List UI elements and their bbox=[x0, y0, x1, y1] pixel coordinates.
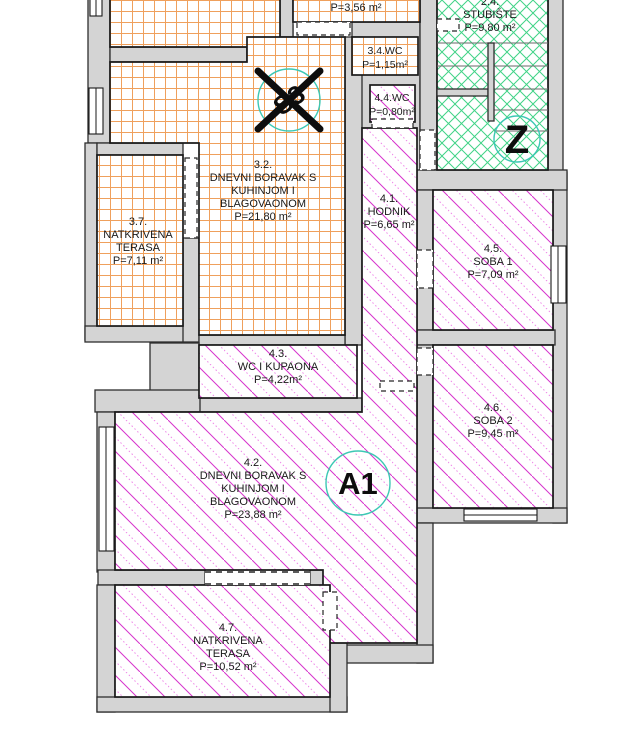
door-terrace-3-7 bbox=[185, 158, 197, 238]
room-3-7-area-label: P=7,11 m² bbox=[113, 255, 164, 267]
room-3-4-wc-name: 3.4.WC bbox=[367, 45, 402, 57]
room-4-6-area-label: P=9,45 m² bbox=[467, 428, 518, 440]
door-stubiste-top bbox=[437, 19, 459, 31]
window-bottom-soba2 bbox=[464, 509, 537, 521]
room-4-1-number: 4.1. bbox=[380, 193, 398, 205]
window-top-left bbox=[90, 0, 102, 16]
opening-terrace-4-7 bbox=[205, 571, 310, 585]
room-4-1-area-label: P=6,65 m² bbox=[363, 219, 414, 231]
door-4-4-wc bbox=[372, 119, 413, 128]
room-3-7-number: 3.7. bbox=[129, 216, 147, 228]
room-3-2-name-1: DNEVNI BORAVAK S bbox=[210, 172, 317, 184]
door-top-room bbox=[297, 22, 350, 35]
room-3-2-area-label: P=21,80 m² bbox=[234, 211, 292, 223]
room-4-4-wc-area-label: P=0,80m² bbox=[369, 106, 415, 118]
room-stubiste-number: 2.4. bbox=[481, 0, 499, 8]
window-right-soba1 bbox=[551, 246, 566, 303]
room-4-5-number: 4.5. bbox=[484, 243, 502, 255]
window-left-living bbox=[99, 427, 114, 551]
room-4-2-name-3: BLAGOVAONOM bbox=[210, 496, 296, 508]
room-3-7-name-2: TERASA bbox=[116, 242, 161, 254]
room-4-2-name-2: KUHINJOM I bbox=[221, 483, 285, 495]
room-4-5-name: SOBA 1 bbox=[473, 256, 512, 268]
staircase-marker-label: Z bbox=[505, 118, 529, 162]
room-4-3-number: 4.3. bbox=[269, 348, 287, 360]
room-stubiste-name: STUBIŠTE bbox=[463, 8, 517, 21]
door-soba2 bbox=[417, 348, 433, 375]
room-3-4-wc-area-label: P=1,15m² bbox=[362, 59, 408, 71]
room-stubiste-area-label: P=9,80 m² bbox=[464, 22, 515, 34]
room-4-7-number: 4.7. bbox=[219, 622, 237, 634]
room-4-2-number: 4.2. bbox=[244, 457, 262, 469]
room-4-1-name: HODNIK bbox=[368, 206, 411, 218]
room-4-6-number: 4.6. bbox=[484, 402, 502, 414]
room-4-3-name: WC I KUPAONA bbox=[238, 361, 319, 373]
door-terrace-4-7-side bbox=[323, 592, 337, 630]
room-4-2-area-label: P=23,88 m² bbox=[224, 509, 282, 521]
room-4-2-name-1: DNEVNI BORAVAK S bbox=[200, 470, 307, 482]
floor-plan-drawing: S3 Z A1 P=3,56 m² 2.4. STUBIŠTE P=9,80 m… bbox=[0, 0, 623, 729]
room-3-2-name-3: BLAGOVAONOM bbox=[220, 198, 306, 210]
room-4-5-area-label: P=7,09 m² bbox=[467, 269, 518, 281]
room-4-4-wc-name: 4.4.WC bbox=[374, 92, 409, 104]
door-hodnik-living bbox=[380, 381, 414, 391]
room-4-7-name-1: NATKRIVENA bbox=[193, 635, 263, 647]
room-4-6-name: SOBA 2 bbox=[473, 415, 512, 427]
room-4-7-name-2: TERASA bbox=[206, 648, 251, 660]
door-soba1 bbox=[417, 250, 433, 288]
floor-plan-page: S3 Z A1 P=3,56 m² 2.4. STUBIŠTE P=9,80 m… bbox=[0, 0, 623, 729]
room-4-3-area-label: P=4,22m² bbox=[254, 374, 302, 386]
room-3-2-name-2: KUHINJOM I bbox=[231, 185, 295, 197]
window-left-upper bbox=[89, 88, 103, 134]
room-3-7-name-1: NATKRIVENA bbox=[103, 229, 173, 241]
door-stubiste bbox=[420, 130, 435, 170]
room-3-2-number: 3.2. bbox=[254, 159, 272, 171]
stair-divider-wall bbox=[488, 43, 494, 121]
room-4-7-area-label: P=10,52 m² bbox=[199, 661, 257, 673]
room-top-area-label: P=3,56 m² bbox=[330, 2, 381, 14]
apartment-marker-label: A1 bbox=[338, 466, 378, 501]
